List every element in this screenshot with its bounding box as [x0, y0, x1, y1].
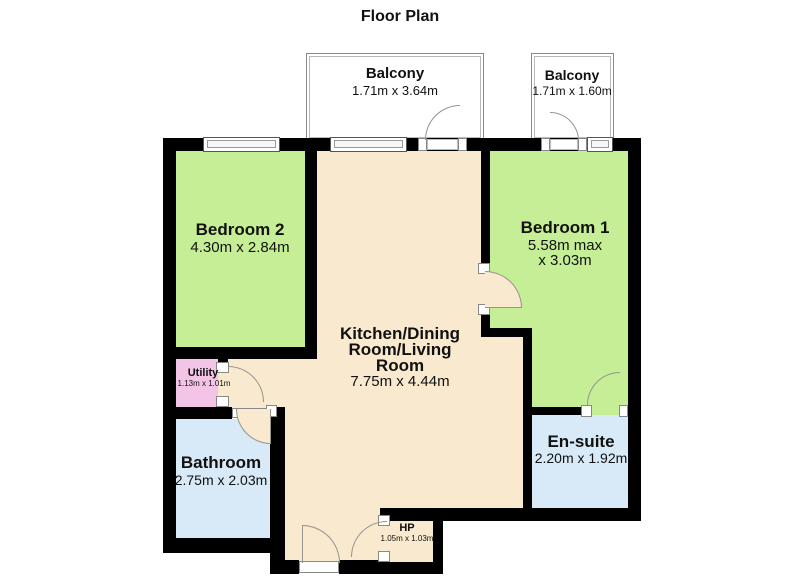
wall-bathroom-bottom — [163, 538, 285, 553]
wall-bathroom-top-west — [163, 407, 232, 419]
wall-kitchen-bottom-west — [270, 560, 299, 574]
window-bedroom1 — [587, 137, 613, 152]
window-glazing — [207, 140, 276, 148]
wall-bottom-right-strip — [380, 508, 641, 521]
wall-right — [628, 138, 641, 521]
wall-kitchen-bedroom1-upper — [481, 151, 490, 263]
kitchen-dims: 7.75m x 4.44m — [350, 374, 449, 391]
wall-kitchen-ensuite — [523, 337, 532, 521]
door-jamb — [578, 138, 587, 151]
bathroom-dims: 2.75m x 2.03m — [175, 473, 268, 488]
balcony-2-label: Balcony — [545, 68, 599, 83]
window-glazing — [591, 140, 609, 148]
ensuite-dims: 2.20m x 1.92m — [535, 451, 628, 466]
hp-label: HP — [399, 522, 414, 534]
door-jamb — [581, 405, 592, 417]
wall-hp-bottom — [380, 562, 443, 574]
balcony-1-label: Balcony — [366, 66, 424, 83]
wall-ensuite-top — [532, 407, 583, 415]
floor-plan-canvas: Floor Plan — [0, 0, 800, 582]
wall-left — [163, 138, 176, 553]
wall-bedroom1-jog — [481, 328, 532, 337]
balcony-1-dims: 1.71m x 3.64m — [352, 84, 438, 98]
door-jamb — [541, 138, 550, 151]
wall-bedroom2-bottom — [163, 347, 317, 359]
balcony-2-dims: 1.71m x 1.60m — [532, 85, 611, 98]
door-jamb — [619, 405, 628, 417]
bathroom-label: Bathroom — [181, 454, 261, 473]
bedroom2-label: Bedroom 2 — [196, 221, 285, 240]
ensuite-label: En-suite — [547, 433, 614, 452]
utility-dims: 1.13m x 1.01m — [178, 380, 231, 389]
wall-kitchen-bedroom1-lower — [481, 314, 490, 328]
wall-bedroom2-kitchen — [305, 151, 317, 359]
window-glazing — [334, 140, 403, 148]
bedroom1-label: Bedroom 1 — [521, 219, 610, 238]
window-kitchen — [330, 137, 407, 152]
bedroom2-dims: 4.30m x 2.84m — [190, 240, 289, 257]
bedroom1-dims-line2: x 3.03m — [538, 253, 591, 270]
room-kitchen-floor-east — [481, 337, 523, 514]
window-bedroom2 — [203, 137, 280, 152]
page-title: Floor Plan — [361, 8, 439, 26]
balcony1-door-opening — [427, 139, 458, 150]
hp-dims: 1.05m x 1.03m — [381, 535, 434, 544]
utility-label: Utility — [188, 367, 219, 379]
